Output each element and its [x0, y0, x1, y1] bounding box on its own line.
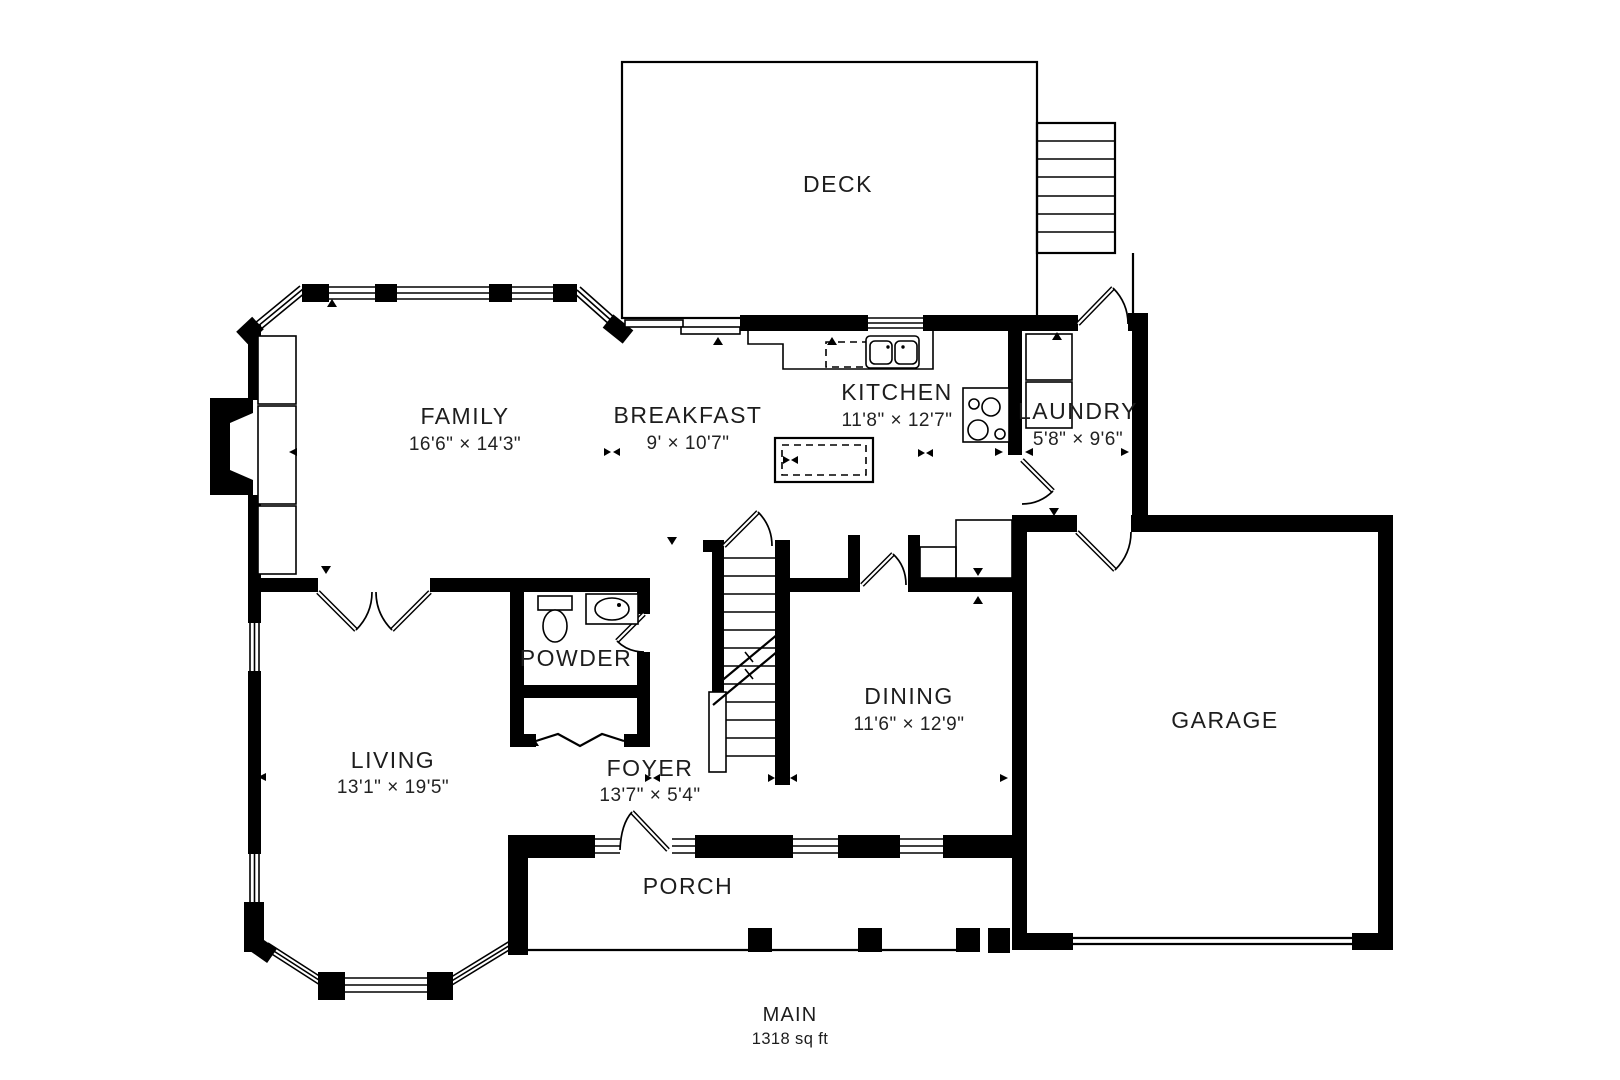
floor-plan-canvas: DECK FAMILY 16'6" × 14'3" BREAKFAST 9' ×… — [0, 0, 1620, 1080]
room-label-kitchen: KITCHEN — [841, 379, 952, 405]
laundry-exterior-door — [1078, 288, 1128, 324]
floor-area-label: 1318 sq ft — [752, 1030, 828, 1048]
stair-newel — [709, 692, 726, 772]
room-label-living: LIVING — [351, 747, 435, 773]
plan-summary: MAIN 1318 sq ft — [752, 1004, 828, 1048]
deck-stairs — [1037, 123, 1133, 313]
room-label-laundry: LAUNDRY — [1018, 398, 1138, 424]
room-label-breakfast: BREAKFAST — [614, 402, 763, 428]
room-label-powder: POWDER — [520, 645, 633, 671]
room-label-deck: DECK — [803, 171, 873, 197]
stair-door — [724, 512, 772, 546]
garage-entry-door — [1077, 532, 1131, 570]
room-labels: DECK FAMILY 16'6" × 14'3" BREAKFAST 9' ×… — [337, 171, 1279, 899]
room-label-family: FAMILY — [420, 403, 509, 429]
builtin-shelf-upper — [258, 336, 296, 404]
sliding-door — [625, 320, 740, 334]
room-dims-foyer: 13'7" × 5'4" — [599, 785, 700, 806]
room-label-dining: DINING — [864, 683, 954, 709]
room-dims-laundry: 5'8" × 9'6" — [1033, 429, 1123, 450]
room-dims-breakfast: 9' × 10'7" — [647, 433, 730, 454]
exterior-walls — [242, 284, 1393, 1000]
porch-outline — [528, 928, 1010, 953]
pantry-door — [862, 554, 906, 585]
room-dims-living: 13'1" × 19'5" — [337, 777, 449, 798]
pantry-shelf-1 — [920, 547, 956, 578]
laundry-door — [1022, 460, 1053, 504]
washer-icon — [1026, 334, 1072, 380]
french-door-right — [376, 592, 430, 630]
floor-level-label: MAIN — [763, 1004, 818, 1026]
french-door-left — [318, 592, 372, 630]
room-label-foyer: FOYER — [607, 755, 694, 781]
front-door — [620, 812, 668, 850]
room-dims-family: 16'6" × 14'3" — [409, 434, 521, 455]
dishwasher-icon — [826, 342, 868, 367]
sink-icon — [586, 594, 638, 624]
stove-icon — [963, 388, 1009, 442]
room-label-garage: GARAGE — [1171, 707, 1278, 733]
windows — [249, 286, 943, 992]
garage-door — [1073, 938, 1352, 944]
floor-plan-svg: DECK FAMILY 16'6" × 14'3" BREAKFAST 9' ×… — [0, 0, 1620, 1080]
room-dims-kitchen: 11'8" × 12'7" — [842, 410, 953, 431]
closet-details — [536, 520, 1012, 746]
builtin-shelf-lower — [258, 506, 296, 574]
pantry-shelf-2 — [956, 520, 1012, 578]
closet-rod-zigzag — [536, 734, 624, 746]
room-dims-dining: 11'6" × 12'9" — [854, 714, 965, 735]
kitchen-sink-icon — [866, 336, 919, 368]
toilet-icon — [538, 596, 572, 642]
room-label-porch: PORCH — [643, 873, 734, 899]
